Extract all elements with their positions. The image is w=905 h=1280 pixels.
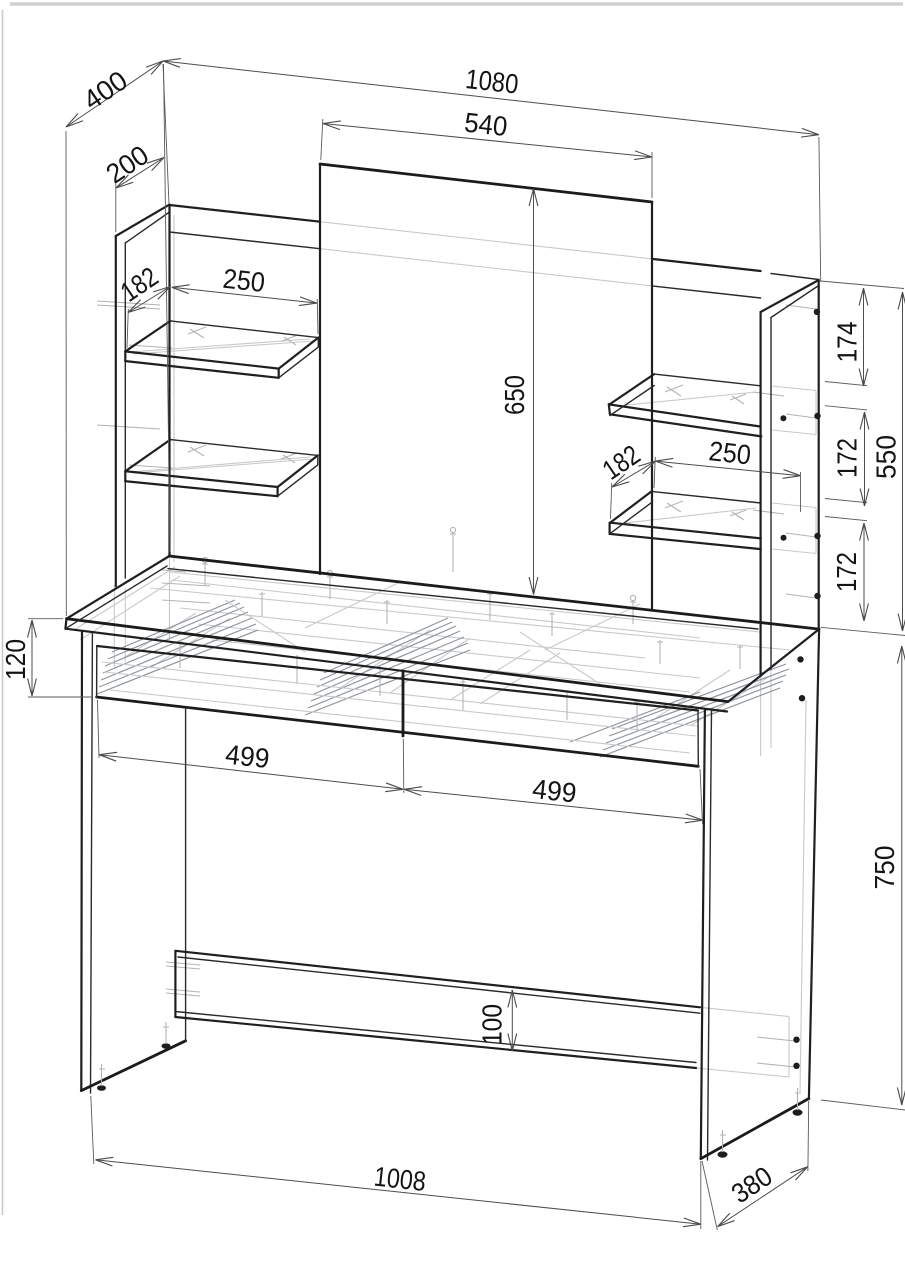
svg-text:172: 172 bbox=[831, 552, 862, 592]
svg-text:1008: 1008 bbox=[372, 1161, 427, 1198]
svg-text:499: 499 bbox=[531, 773, 578, 809]
svg-text:100: 100 bbox=[476, 1004, 507, 1045]
svg-text:120: 120 bbox=[0, 639, 31, 680]
svg-text:540: 540 bbox=[463, 107, 509, 143]
svg-text:550: 550 bbox=[870, 435, 901, 479]
svg-text:172: 172 bbox=[831, 438, 862, 478]
svg-text:499: 499 bbox=[224, 738, 271, 774]
svg-text:250: 250 bbox=[221, 263, 266, 298]
svg-text:250: 250 bbox=[707, 435, 752, 470]
svg-text:174: 174 bbox=[831, 322, 862, 363]
svg-text:1080: 1080 bbox=[464, 63, 520, 100]
svg-text:650: 650 bbox=[499, 375, 530, 415]
svg-text:750: 750 bbox=[869, 846, 900, 890]
